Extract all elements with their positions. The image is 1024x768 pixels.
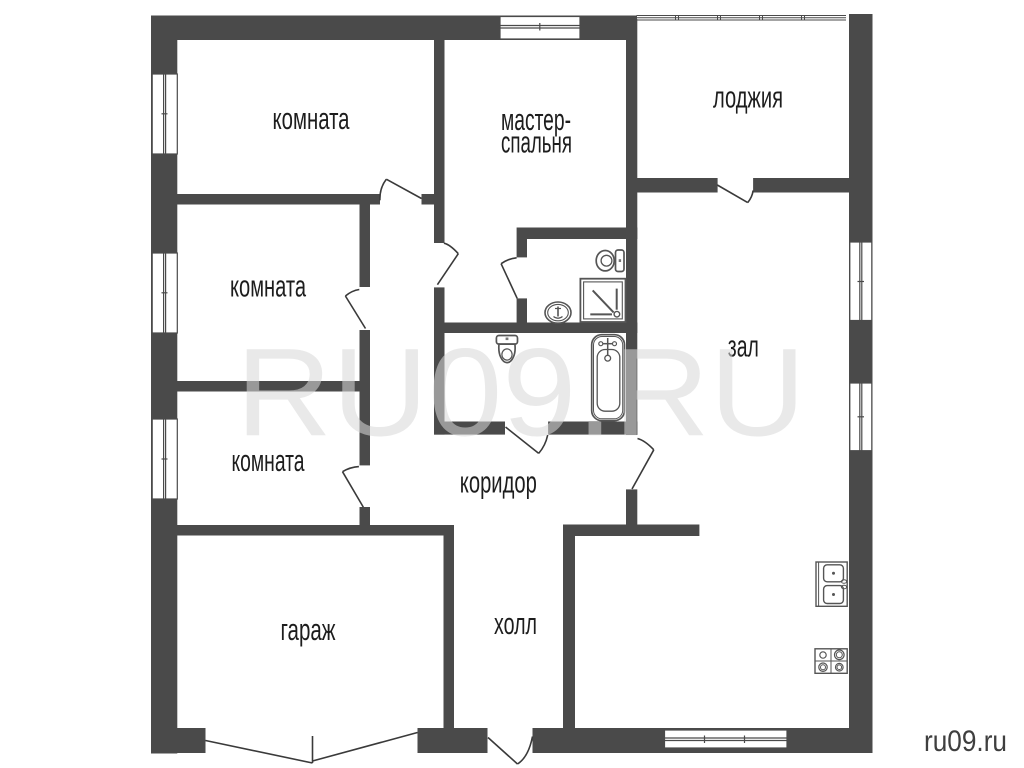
svg-text:ru09.ru: ru09.ru	[924, 725, 1007, 758]
svg-text:холл: холл	[494, 606, 537, 641]
svg-text:спальня: спальня	[501, 124, 572, 159]
svg-text:RU09.RU: RU09.RU	[236, 323, 806, 462]
svg-text:гараж: гараж	[281, 612, 336, 647]
svg-text:комната: комната	[273, 101, 350, 136]
svg-text:лоджия: лоджия	[713, 80, 783, 115]
svg-text:коридор: коридор	[460, 465, 537, 500]
svg-text:комната: комната	[230, 269, 306, 304]
